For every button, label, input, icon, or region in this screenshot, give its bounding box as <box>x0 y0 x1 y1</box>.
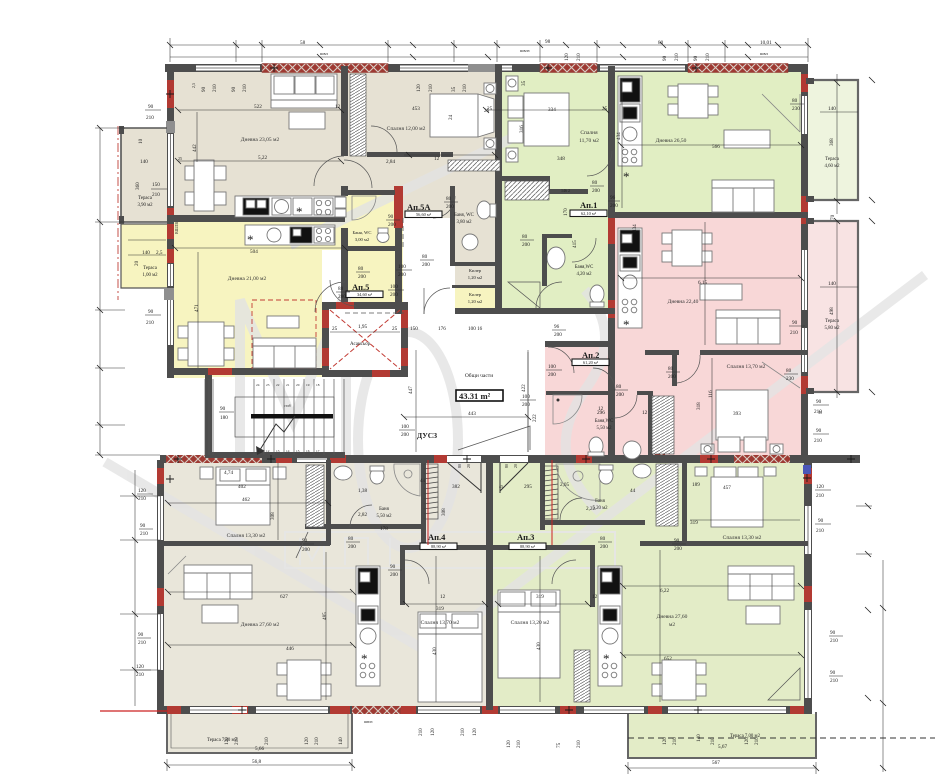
svg-text:210: 210 <box>136 672 144 678</box>
svg-text:70: 70 <box>830 214 836 220</box>
svg-text:210: 210 <box>212 84 218 92</box>
svg-text:Спалня 13,30 м2: Спалня 13,30 м2 <box>227 533 266 539</box>
svg-text:80: 80 <box>786 368 792 374</box>
svg-text:210: 210 <box>460 728 466 736</box>
svg-text:75: 75 <box>556 742 562 748</box>
svg-text:11: 11 <box>256 449 260 453</box>
svg-text:210: 210 <box>710 737 716 745</box>
svg-text:453: 453 <box>412 106 420 112</box>
svg-text:189: 189 <box>692 482 700 488</box>
svg-text:178: 178 <box>380 526 388 532</box>
svg-text:80: 80 <box>457 464 462 468</box>
svg-text:35: 35 <box>818 410 822 415</box>
svg-text:210: 210 <box>814 438 822 444</box>
svg-text:90: 90 <box>138 632 144 638</box>
svg-text:498: 498 <box>829 307 835 315</box>
svg-text:14: 14 <box>286 449 290 453</box>
svg-text:90: 90 <box>201 86 207 92</box>
svg-text:222: 222 <box>532 414 538 422</box>
svg-text:Спалня 13,30 м2: Спалня 13,30 м2 <box>723 535 762 541</box>
svg-text:25: 25 <box>487 106 493 112</box>
svg-text:20: 20 <box>466 464 471 468</box>
svg-text:6,15: 6,15 <box>698 280 707 286</box>
svg-text:м2: м2 <box>669 622 675 628</box>
svg-text:23: 23 <box>266 383 270 387</box>
svg-text:100: 100 <box>390 284 398 290</box>
svg-text:90: 90 <box>674 538 680 544</box>
svg-text:210: 210 <box>428 84 434 92</box>
svg-text:200: 200 <box>388 222 396 228</box>
svg-text:5,50 м2: 5,50 м2 <box>376 514 392 519</box>
svg-text:319: 319 <box>436 606 444 612</box>
svg-text:4,20 м2: 4,20 м2 <box>576 272 592 277</box>
svg-text:35: 35 <box>521 80 527 86</box>
svg-text:2,05: 2,05 <box>560 482 569 488</box>
svg-text:210: 210 <box>242 84 248 92</box>
svg-text:415: 415 <box>572 240 578 248</box>
svg-text:98: 98 <box>545 39 551 45</box>
svg-text:430: 430 <box>536 642 542 650</box>
svg-text:Баня, WC: Баня, WC <box>454 213 474 218</box>
svg-text:120: 120 <box>506 740 512 748</box>
svg-text:Килер: Килер <box>469 268 482 273</box>
svg-text:200: 200 <box>390 572 398 578</box>
svg-text:200: 200 <box>390 292 398 298</box>
svg-text:80: 80 <box>792 98 798 104</box>
svg-text:210: 210 <box>140 531 148 537</box>
svg-text:140: 140 <box>828 106 836 112</box>
svg-text:25: 25 <box>332 326 338 332</box>
svg-text:44: 44 <box>630 488 636 494</box>
svg-text:Тераса 7,80 м2: Тераса 7,80 м2 <box>207 738 238 743</box>
svg-text:210: 210 <box>264 737 270 745</box>
svg-text:210: 210 <box>705 53 711 61</box>
svg-text:462: 462 <box>242 497 250 503</box>
svg-text:80: 80 <box>522 234 528 240</box>
svg-text:200: 200 <box>592 188 600 194</box>
svg-text:6,22: 6,22 <box>660 588 669 594</box>
svg-text:504: 504 <box>250 249 258 255</box>
svg-text:100: 100 <box>401 424 409 430</box>
svg-text:210: 210 <box>152 192 160 198</box>
svg-text:200: 200 <box>358 274 366 280</box>
svg-text:Ап.4: Ап.4 <box>428 532 446 542</box>
svg-text:90: 90 <box>792 320 798 326</box>
svg-text:210: 210 <box>146 320 154 326</box>
svg-text:200: 200 <box>302 547 310 553</box>
svg-text:16: 16 <box>306 449 310 453</box>
svg-text:Дневна 27,60 м2: Дневна 27,60 м2 <box>241 622 280 628</box>
svg-text:2,84: 2,84 <box>386 159 395 165</box>
svg-text:Ап.1: Ап.1 <box>580 200 597 210</box>
svg-text:20: 20 <box>513 464 518 468</box>
svg-text:12: 12 <box>434 156 440 162</box>
svg-text:12: 12 <box>592 594 598 600</box>
svg-text:522: 522 <box>254 104 262 110</box>
svg-text:швл: швл <box>760 51 769 56</box>
svg-text:150: 150 <box>410 326 418 332</box>
svg-text:150: 150 <box>152 182 160 188</box>
svg-text:100: 100 <box>548 364 556 370</box>
svg-text:319: 319 <box>690 520 698 526</box>
svg-text:100: 100 <box>398 264 406 270</box>
svg-text:308: 308 <box>270 512 276 520</box>
svg-text:567: 567 <box>712 760 720 766</box>
svg-text:Дневна 27,60: Дневна 27,60 <box>657 614 688 620</box>
svg-text:200: 200 <box>674 546 682 552</box>
svg-text:24: 24 <box>256 383 260 387</box>
svg-text:25: 25 <box>392 326 398 332</box>
svg-text:100 16: 100 16 <box>468 326 483 332</box>
svg-text:19: 19 <box>306 383 310 387</box>
svg-text:434: 434 <box>616 132 622 140</box>
svg-text:210: 210 <box>462 84 468 92</box>
svg-text:15: 15 <box>296 449 300 453</box>
svg-text:20: 20 <box>134 260 140 266</box>
svg-text:90: 90 <box>830 630 836 636</box>
svg-text:120: 120 <box>224 737 230 745</box>
svg-text:*: * <box>247 232 254 247</box>
svg-text:90: 90 <box>140 523 146 529</box>
svg-text:200: 200 <box>600 544 608 550</box>
svg-text:80: 80 <box>592 180 598 186</box>
svg-text:Ап.3: Ап.3 <box>517 532 534 542</box>
svg-text:25: 25 <box>178 156 182 161</box>
svg-text:308: 308 <box>441 508 447 516</box>
svg-text:471: 471 <box>194 304 200 312</box>
svg-text:140: 140 <box>338 737 344 745</box>
svg-text:447: 447 <box>408 386 414 394</box>
svg-text:434: 434 <box>632 224 638 232</box>
svg-text:230: 230 <box>792 106 800 112</box>
svg-text:652: 652 <box>664 656 672 662</box>
svg-text:120: 120 <box>136 664 144 670</box>
svg-text:393: 393 <box>733 411 741 417</box>
svg-text:2,22: 2,22 <box>586 506 595 512</box>
svg-text:3,80 м2: 3,80 м2 <box>456 220 472 225</box>
svg-text:210: 210 <box>830 678 838 684</box>
svg-text:90: 90 <box>148 309 154 315</box>
svg-text:140: 140 <box>140 159 148 165</box>
svg-text:58: 58 <box>300 40 306 46</box>
svg-text:4,74: 4,74 <box>224 470 233 476</box>
svg-text:146 2: 146 2 <box>561 188 570 193</box>
svg-text:140: 140 <box>828 281 836 287</box>
svg-text:10,01: 10,01 <box>760 40 772 46</box>
svg-text:80: 80 <box>422 254 428 260</box>
svg-text:Дневна 23,05 м2: Дневна 23,05 м2 <box>241 137 280 143</box>
svg-text:3,90 м2: 3,90 м2 <box>137 203 153 208</box>
svg-text:230: 230 <box>786 376 794 382</box>
svg-text:446: 446 <box>286 646 294 652</box>
svg-text:402: 402 <box>238 484 246 490</box>
svg-text:140: 140 <box>696 734 702 742</box>
svg-text:318: 318 <box>696 402 702 410</box>
svg-text:100: 100 <box>522 394 530 400</box>
svg-text:*: * <box>603 651 610 666</box>
svg-text:12: 12 <box>266 449 270 453</box>
svg-text:90: 90 <box>818 518 824 524</box>
svg-text:швлз: швлз <box>364 719 373 724</box>
svg-text:1,95: 1,95 <box>358 324 367 330</box>
svg-text:90: 90 <box>220 406 226 412</box>
svg-text:200: 200 <box>401 432 409 438</box>
svg-text:90: 90 <box>390 564 396 570</box>
svg-text:200: 200 <box>348 544 356 550</box>
svg-text:13: 13 <box>276 449 280 453</box>
svg-text:21: 21 <box>286 383 290 387</box>
svg-text:80: 80 <box>504 464 509 468</box>
svg-text:210: 210 <box>816 528 824 534</box>
svg-text:90: 90 <box>388 214 394 220</box>
svg-text:17: 17 <box>316 449 320 453</box>
svg-text:120: 120 <box>416 84 422 92</box>
svg-text:120: 120 <box>472 728 478 736</box>
svg-text:Тераса: Тераса <box>825 157 840 162</box>
svg-text:200: 200 <box>616 392 624 398</box>
svg-text:120: 120 <box>744 737 750 745</box>
svg-text:200: 200 <box>548 372 556 378</box>
svg-text:90: 90 <box>816 399 822 405</box>
svg-text:Баня: Баня <box>379 507 389 512</box>
svg-text:Асансьор: Асансьор <box>350 342 371 347</box>
svg-text:80: 80 <box>446 196 452 202</box>
svg-text:Тераса: Тераса <box>825 319 840 324</box>
svg-text:Спалня: Спалня <box>580 130 598 136</box>
svg-text:210: 210 <box>418 728 424 736</box>
svg-text:12: 12 <box>440 594 446 600</box>
svg-text:210: 210 <box>138 640 146 646</box>
svg-text:20: 20 <box>296 383 300 387</box>
svg-text:200: 200 <box>554 332 562 338</box>
svg-text:200: 200 <box>668 374 676 380</box>
svg-text:Баня,WC: Баня,WC <box>575 265 594 270</box>
svg-text:Килер: Килер <box>469 292 482 297</box>
svg-text:180: 180 <box>220 415 228 421</box>
svg-text:24: 24 <box>448 114 454 120</box>
svg-text:5,80 м2: 5,80 м2 <box>824 326 840 331</box>
svg-text:295: 295 <box>524 484 532 490</box>
svg-text:1,00 м2: 1,00 м2 <box>142 273 158 278</box>
svg-text:5,50 м2: 5,50 м2 <box>596 426 612 431</box>
svg-text:90: 90 <box>693 55 699 61</box>
svg-text:12: 12 <box>598 406 604 412</box>
svg-text:116: 116 <box>708 390 714 398</box>
svg-text:360: 360 <box>135 182 141 190</box>
svg-text:120: 120 <box>816 484 824 490</box>
svg-text:90: 90 <box>231 86 237 92</box>
svg-text:11,70 м2: 11,70 м2 <box>579 138 599 144</box>
svg-text:стлб: стлб <box>284 404 291 408</box>
svg-text:90: 90 <box>662 55 668 61</box>
svg-text:2,82: 2,82 <box>358 512 367 518</box>
svg-text:210: 210 <box>816 493 824 499</box>
svg-text:Баня,WC: Баня,WC <box>595 419 614 424</box>
svg-text:96: 96 <box>610 195 616 201</box>
svg-text:120: 120 <box>430 728 436 736</box>
svg-text:457: 457 <box>723 485 731 491</box>
svg-text:швл: швл <box>320 51 329 56</box>
svg-text:1,38: 1,38 <box>358 488 367 494</box>
svg-text:200: 200 <box>398 272 406 278</box>
svg-text:ВШЛВ: ВШЛВ <box>174 222 179 234</box>
svg-text:200: 200 <box>522 402 530 408</box>
svg-text:140: 140 <box>142 250 150 256</box>
svg-text:627: 627 <box>280 594 288 600</box>
svg-text:Спалня 13,70 м2: Спалня 13,70 м2 <box>727 364 766 370</box>
svg-text:18: 18 <box>316 383 320 387</box>
svg-text:430: 430 <box>432 647 438 655</box>
svg-text:90: 90 <box>148 104 154 110</box>
svg-text:200: 200 <box>422 262 430 268</box>
svg-text:90: 90 <box>830 670 836 676</box>
svg-text:*: * <box>361 651 368 666</box>
svg-text:45: 45 <box>499 484 503 489</box>
svg-text:96: 96 <box>554 324 560 330</box>
svg-text:12: 12 <box>642 410 648 416</box>
svg-text:120: 120 <box>662 737 668 745</box>
svg-text:80: 80 <box>658 40 664 46</box>
svg-text:35: 35 <box>451 86 457 92</box>
svg-text:10: 10 <box>138 138 144 144</box>
svg-text:368: 368 <box>829 138 835 146</box>
svg-text:швлз: швлз <box>520 48 530 53</box>
svg-text:200: 200 <box>446 204 454 210</box>
svg-text:Спалня 13,70 м2: Спалня 13,70 м2 <box>421 620 460 626</box>
svg-text:120: 120 <box>304 737 310 745</box>
svg-text:80: 80 <box>668 366 674 372</box>
svg-text:210: 210 <box>754 737 760 745</box>
svg-text:210: 210 <box>576 740 582 748</box>
svg-text:Дневна 21,00 м2: Дневна 21,00 м2 <box>228 276 267 282</box>
svg-text:56,8: 56,8 <box>252 759 261 765</box>
svg-text:80: 80 <box>600 536 606 542</box>
svg-text:80: 80 <box>348 536 354 542</box>
svg-text:120: 120 <box>564 53 570 61</box>
svg-text:210: 210 <box>234 737 240 745</box>
svg-text:485: 485 <box>322 612 328 620</box>
svg-text:200: 200 <box>610 203 618 209</box>
svg-text:90: 90 <box>816 428 822 434</box>
svg-text:Дневна 26,50: Дневна 26,50 <box>656 138 687 144</box>
svg-text:210: 210 <box>790 330 798 336</box>
svg-text:176: 176 <box>438 326 446 332</box>
svg-text:Тераса: Тераса <box>143 266 158 271</box>
svg-text:5,66: 5,66 <box>255 746 264 752</box>
svg-text:210: 210 <box>672 737 678 745</box>
svg-text:348: 348 <box>557 156 565 162</box>
svg-text:120: 120 <box>138 488 146 494</box>
svg-text:22: 22 <box>276 383 280 387</box>
svg-text:210: 210 <box>516 740 522 748</box>
svg-text:Баня: Баня <box>595 499 605 504</box>
svg-text:88: 88 <box>338 286 344 292</box>
svg-text:ДУСЗ: ДУСЗ <box>417 431 437 440</box>
svg-text:210: 210 <box>146 115 154 121</box>
svg-text:4,60 м2: 4,60 м2 <box>824 164 840 169</box>
svg-text:2,5: 2,5 <box>156 250 163 256</box>
svg-text:170: 170 <box>563 208 569 216</box>
svg-text:Спалня 12,00 м2: Спалня 12,00 м2 <box>387 126 426 132</box>
svg-text:316: 316 <box>519 125 525 133</box>
svg-text:443: 443 <box>468 411 476 417</box>
svg-text:5,67: 5,67 <box>718 744 727 750</box>
svg-text:*: * <box>296 204 303 219</box>
svg-text:Дневна 22,40: Дневна 22,40 <box>668 299 699 305</box>
svg-text:210: 210 <box>674 53 680 61</box>
svg-text:210: 210 <box>138 496 146 502</box>
svg-text:43.31 m²: 43.31 m² <box>459 391 491 401</box>
svg-text:80: 80 <box>616 384 622 390</box>
svg-text:422: 422 <box>521 384 527 392</box>
svg-text:210: 210 <box>830 638 838 644</box>
svg-text:210: 210 <box>314 737 320 745</box>
svg-text:Общи части: Общи части <box>465 372 493 379</box>
svg-text:80: 80 <box>358 266 364 272</box>
svg-text:Спалня 13,20 м2: Спалня 13,20 м2 <box>511 620 550 626</box>
svg-text:*: * <box>623 169 630 184</box>
svg-text:5,22: 5,22 <box>258 155 267 161</box>
svg-text:280: 280 <box>338 294 346 300</box>
svg-text:210: 210 <box>576 53 582 61</box>
svg-text:*: * <box>623 317 630 332</box>
svg-text:200: 200 <box>522 242 530 248</box>
svg-text:Тераса: Тераса <box>138 196 153 201</box>
svg-text:382: 382 <box>452 484 460 490</box>
